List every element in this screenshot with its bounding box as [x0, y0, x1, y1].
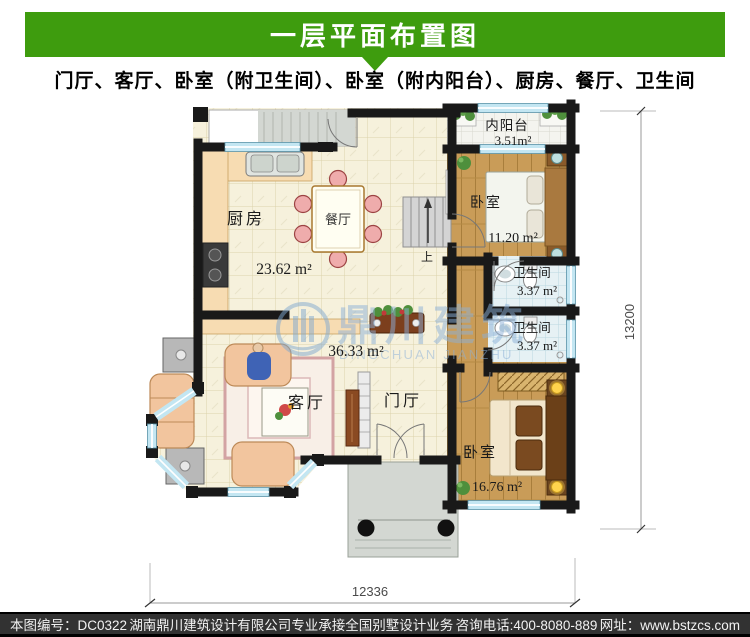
footer-company: 湖南鼎川建筑设计有限公司专业承接全国别墅设计业务 — [129, 614, 453, 634]
bedroom2-label: 卧室 — [463, 444, 497, 461]
balcony-area: 3.51m² — [495, 133, 532, 148]
balcony-label: 内阳台 — [485, 118, 529, 133]
headboard — [546, 396, 567, 480]
bedroom2-area: 16.76 m² — [472, 480, 522, 495]
dimension-height-label: 13200 — [622, 304, 637, 340]
staircase — [403, 197, 451, 247]
porch-column — [438, 520, 455, 537]
top-terrace — [209, 110, 355, 146]
plant — [457, 156, 471, 170]
floor-plan-drawing: 鼎川建筑 DINGCHUAN JIANZHU 12336 13200 厨房 餐厅… — [0, 0, 750, 637]
person-figure — [247, 352, 271, 380]
footer-website: 网址：www.bstzcs.com — [600, 614, 740, 634]
dimension-width-label: 12336 — [352, 584, 388, 599]
porch-column — [358, 520, 375, 537]
kitchen-dining-area: 23.62 m² — [256, 261, 312, 278]
armchair — [232, 442, 294, 486]
footer-bar: 本图编号：DC0322 湖南鼎川建筑设计有限公司专业承接全国别墅设计业务 咨询电… — [0, 612, 750, 637]
bath2-label: 卫生间 — [513, 321, 551, 335]
plant — [456, 481, 470, 495]
stair-up-label: 上 — [421, 250, 433, 264]
bath1-area: 3.37 m² — [517, 283, 557, 298]
footer-plan-number: 本图编号：DC0322 — [10, 614, 127, 634]
watermark-cn: 鼎川建筑 — [337, 302, 529, 349]
entry-porch — [348, 462, 458, 557]
bath1-label: 卫生间 — [513, 266, 551, 280]
kitchen-label: 厨房 — [227, 210, 265, 228]
bath2-area: 3.37 m² — [517, 338, 557, 353]
bedroom1-label: 卧室 — [470, 194, 502, 211]
floor-plan-page: 一层平面布置图 门厅、客厅、卧室（附卫生间）、卧室（附内阳台）、厨房、餐厅、卫生… — [0, 0, 750, 637]
partition-shelf — [358, 372, 370, 448]
foyer-label: 门厅 — [384, 392, 422, 410]
living-area: 36.33 m² — [328, 343, 384, 360]
footer-phone: 咨询电话:400-8080-889 — [456, 614, 598, 634]
living-label: 客厅 — [288, 394, 326, 412]
dining-label: 餐厅 — [325, 212, 351, 227]
bedroom1-area: 11.20 m² — [488, 231, 538, 246]
headboard — [545, 168, 567, 246]
